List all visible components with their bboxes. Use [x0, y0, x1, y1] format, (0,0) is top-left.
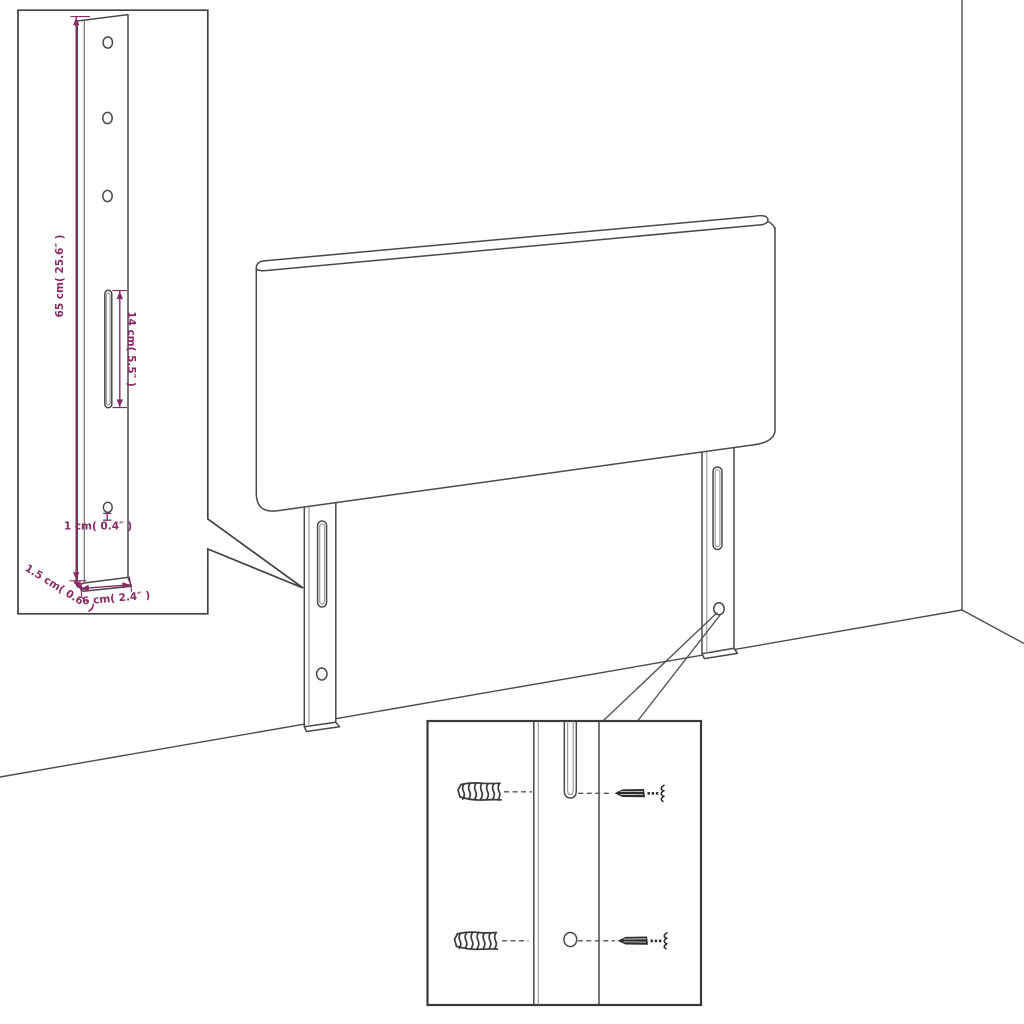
bracket-hole-bottom [103, 502, 112, 512]
bracket-slot [105, 290, 112, 408]
inset-mounting-detail [428, 721, 702, 1005]
hole-diameter-label: 1 cm( 0.4″ ) [64, 521, 132, 533]
leg-left-slot [318, 521, 327, 607]
bracket-hole-3 [103, 190, 112, 201]
bracket-hole-1 [103, 37, 112, 48]
leg-right-slot [713, 467, 722, 550]
height-label: 65 cm( 25.6″ ) [54, 235, 66, 318]
strip-hole [564, 933, 577, 947]
slot-height-label: 14 cm( 5.5″ ) [125, 311, 137, 387]
leg-right-hole [714, 603, 724, 615]
headboard-assembly-diagram: 65 cm( 25.6″ ) 14 cm( 5.5″ ) 1 cm( 0.4″ … [0, 0, 1024, 1024]
leg-left-hole [317, 668, 327, 680]
diagram-stage: 65 cm( 25.6″ ) 14 cm( 5.5″ ) 1 cm( 0.4″ … [0, 0, 1024, 1024]
bracket-hole-2 [103, 112, 112, 123]
